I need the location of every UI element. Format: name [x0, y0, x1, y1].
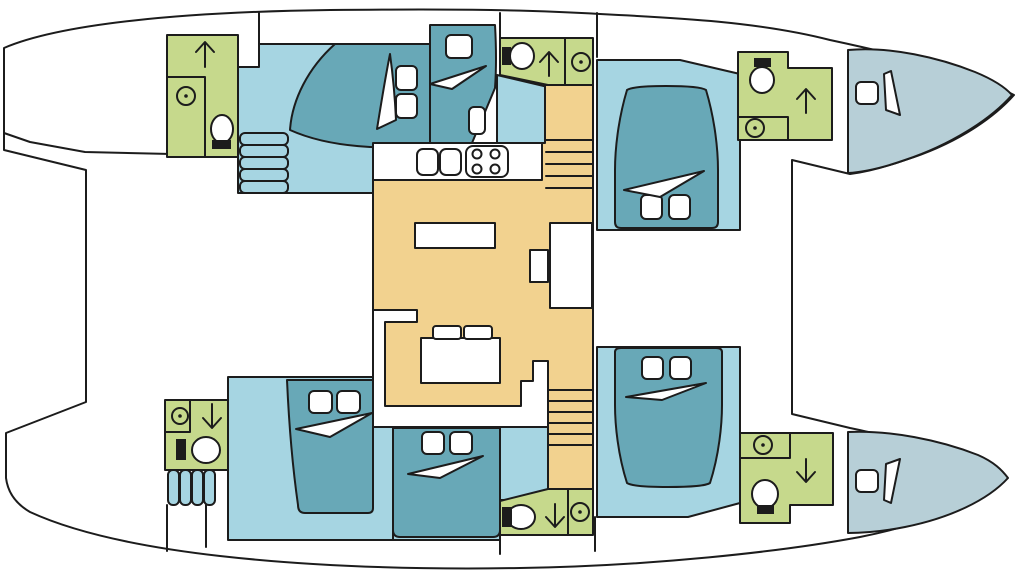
bed-pillow-icon [309, 391, 332, 413]
lower-mid-bed [393, 428, 500, 537]
bed-pillow-icon [422, 432, 444, 454]
bed-pillow-icon [469, 107, 485, 134]
toilet-icon [192, 437, 220, 463]
bed-pillow-icon [450, 432, 472, 454]
lower-fore-bed [615, 348, 722, 487]
toilet-icon [510, 43, 534, 69]
galley-sink-icon [417, 149, 438, 175]
stove-icon [466, 146, 508, 177]
upper-bow-berth [848, 49, 1012, 173]
nav-station [550, 223, 592, 308]
bed-pillow-icon [396, 66, 417, 90]
stove-burner [473, 165, 482, 174]
toilet-tank [502, 47, 511, 65]
lower-aft-steps-icon [168, 470, 215, 505]
bed-pillow-icon [396, 94, 417, 118]
bed-pillow-icon [642, 357, 663, 379]
salon-table [421, 338, 500, 383]
toilet-tank [757, 505, 774, 514]
stove-burner [491, 165, 500, 174]
toilet-icon [211, 115, 233, 143]
bed-pillow-icon [856, 470, 878, 492]
upper-mid-floor [497, 75, 548, 143]
nav-seat [530, 250, 548, 282]
upper-aft-steps-icon [240, 133, 288, 193]
bed-pillow-icon [856, 82, 878, 104]
toilet-icon [750, 67, 774, 93]
sideboard [415, 223, 495, 248]
stove-burner [491, 150, 500, 159]
bed-pillow-icon [669, 195, 690, 219]
toilet-tank [502, 507, 512, 527]
galley-sink-icon [440, 149, 461, 175]
stove-burner [473, 150, 482, 159]
toilet-tank [754, 58, 771, 67]
toilet-tank [212, 140, 231, 149]
bed-pillow-icon [337, 391, 360, 413]
toilet-icon [752, 480, 778, 508]
bed-pillow-icon [446, 35, 472, 58]
sofa-cushion [464, 326, 492, 339]
bow-berths [848, 49, 1012, 533]
floor-plan-svg [0, 0, 1024, 574]
bed-pillow-icon [641, 195, 662, 219]
bed-pillow-icon [670, 357, 691, 379]
toilet-tank [176, 439, 186, 460]
sofa-cushion [433, 326, 461, 339]
catamaran-floor-plan [0, 0, 1024, 574]
upper-fore-bed [615, 86, 718, 228]
